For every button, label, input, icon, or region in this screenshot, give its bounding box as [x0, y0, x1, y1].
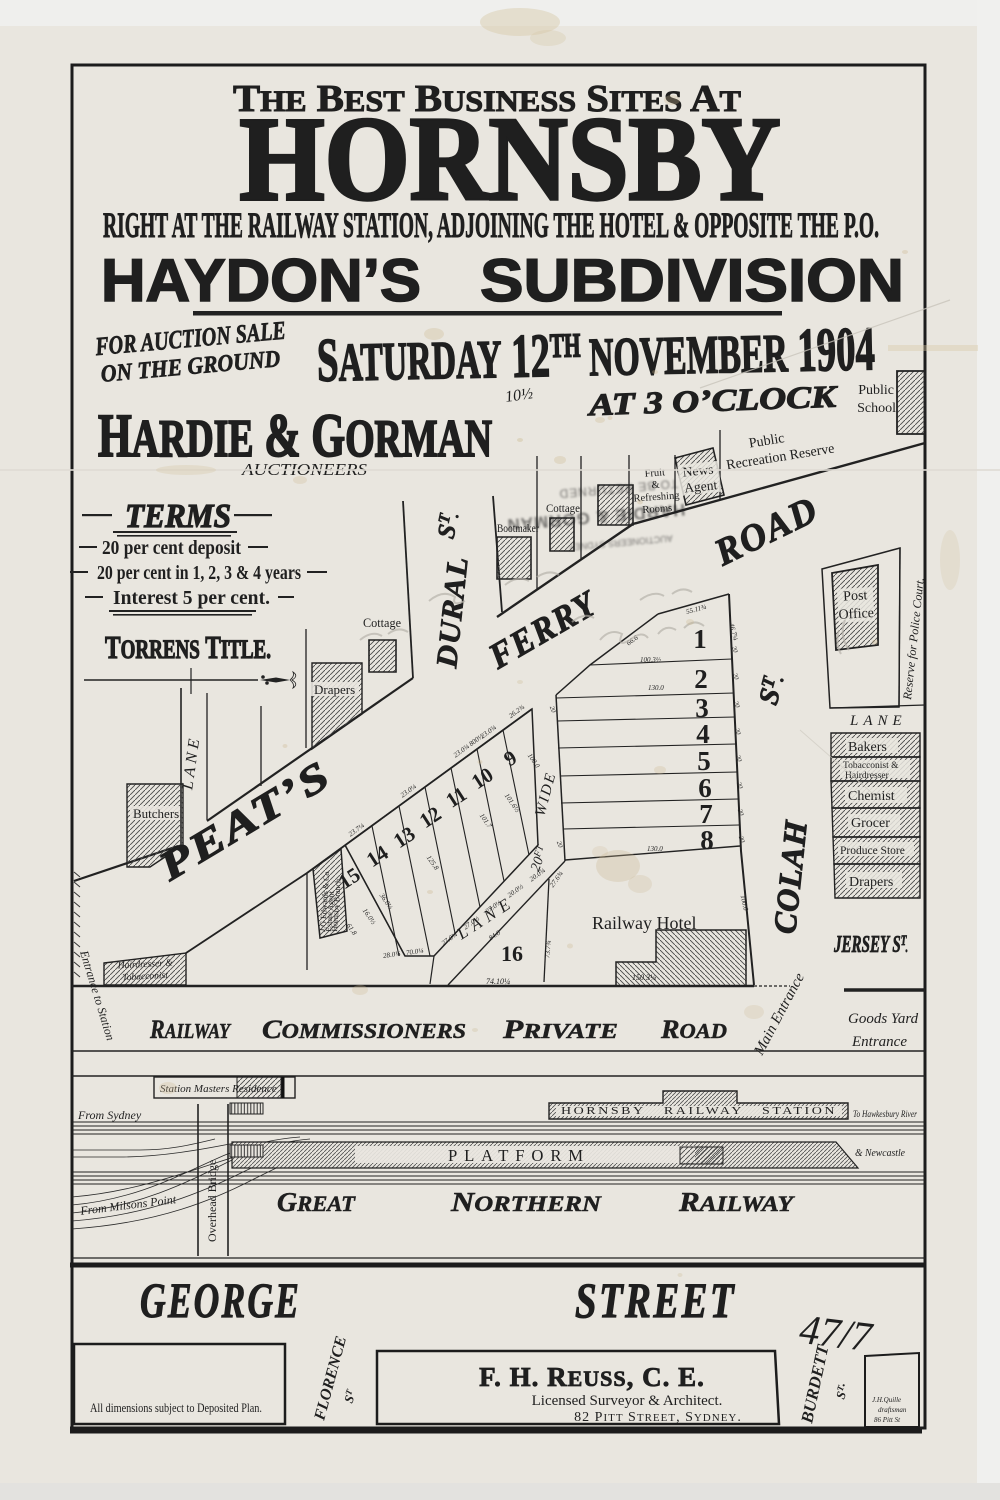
svg-text:8: 8 — [700, 825, 714, 855]
svg-text:82 PITT STREET, SYDNEY.: 82 PITT STREET, SYDNEY. — [574, 1410, 742, 1425]
svg-text:Station Masters Residence: Station Masters Residence — [160, 1083, 277, 1095]
svg-text:Post: Post — [843, 588, 868, 604]
svg-text:Licensed Surveyor & Architect.: Licensed Surveyor & Architect. — [532, 1393, 723, 1409]
svg-text:F. H. REUSS, C. E.: F. H. REUSS, C. E. — [479, 1362, 705, 1392]
svg-text:J.H.Quille: J.H.Quille — [872, 1396, 901, 1404]
svg-text:1: 1 — [693, 624, 707, 654]
svg-text:Bakers: Bakers — [848, 740, 887, 755]
svg-text:PLATFORM: PLATFORM — [448, 1146, 590, 1165]
svg-text:From Sydney: From Sydney — [77, 1108, 142, 1122]
svg-text:Butchers: Butchers — [133, 806, 179, 821]
svg-text:All dimensions subject to Depo: All dimensions subject to Deposited Plan… — [90, 1401, 262, 1415]
svg-text:HORNSBY RAILWAY STATION: HORNSBY RAILWAY STATION — [561, 1105, 837, 1117]
svg-text:Cottage: Cottage — [363, 616, 401, 630]
svg-text:JERSEY ST.: JERSEY ST. — [833, 932, 908, 958]
svg-text:NORTHERN: NORTHERN — [450, 1187, 603, 1217]
svg-text:5: 5 — [697, 746, 711, 776]
svg-text:73.7¾: 73.7¾ — [543, 939, 553, 958]
svg-text:HAYDON’S: HAYDON’S — [101, 247, 421, 314]
svg-text:130.0: 130.0 — [648, 684, 664, 692]
svg-text:Interest 5 per cent.: Interest 5 per cent. — [113, 587, 270, 609]
svg-text:GREAT: GREAT — [277, 1187, 357, 1217]
svg-text:Entrance: Entrance — [851, 1034, 907, 1050]
svg-text:Office: Office — [838, 606, 874, 623]
svg-text:RAILWAY: RAILWAY — [678, 1187, 796, 1217]
svg-text:2: 2 — [694, 664, 708, 694]
svg-text:Public: Public — [858, 383, 894, 398]
svg-text:LANE: LANE — [849, 713, 907, 729]
svg-text:SUBDIVISION: SUBDIVISION — [480, 247, 904, 314]
svg-text:To Hawkesbury River: To Hawkesbury River — [853, 1109, 917, 1119]
svg-text:COMMISSIONERS: COMMISSIONERS — [262, 1015, 466, 1044]
svg-text:RAILWAY: RAILWAY — [149, 1015, 232, 1044]
svg-text:ROAD: ROAD — [660, 1015, 727, 1044]
svg-text:TERMS: TERMS — [125, 498, 231, 535]
svg-text:draftsman: draftsman — [878, 1406, 907, 1414]
svg-text:20 per cent in 1, 2, 3 & 4 yea: 20 per cent in 1, 2, 3 & 4 years — [97, 562, 301, 584]
svg-text:150.3¼: 150.3¼ — [632, 973, 656, 982]
svg-text:16: 16 — [501, 941, 523, 966]
svg-text:4: 4 — [696, 719, 710, 749]
svg-text:Tobacconist &: Tobacconist & — [843, 761, 899, 771]
svg-text:Drapers: Drapers — [314, 682, 355, 697]
svg-text:PRIVATE: PRIVATE — [502, 1015, 618, 1044]
svg-text:Produce Store: Produce Store — [840, 845, 905, 857]
svg-text:TORRENS TITLE.: TORRENS TITLE. — [105, 629, 271, 665]
svg-text:Hairdresser: Hairdresser — [845, 771, 890, 781]
svg-text:Goods Yard: Goods Yard — [848, 1011, 919, 1027]
svg-text:GEORGE: GEORGE — [140, 1272, 301, 1328]
svg-text:& Newcastle: & Newcastle — [855, 1148, 906, 1159]
svg-text:STREET: STREET — [575, 1272, 736, 1328]
svg-text:RIGHT AT THE RAILWAY STATION,: RIGHT AT THE RAILWAY STATION, ADJOINING … — [103, 205, 879, 245]
svg-text:Grocer: Grocer — [851, 816, 890, 831]
svg-text:Drapers: Drapers — [849, 875, 893, 890]
svg-text:20 per cent deposit: 20 per cent deposit — [102, 537, 241, 559]
svg-text:130.0: 130.0 — [647, 845, 663, 853]
svg-text:74.10¼: 74.10¼ — [486, 977, 510, 986]
svg-text:47/7: 47/7 — [797, 1307, 876, 1362]
svg-text:Chemist: Chemist — [848, 789, 895, 804]
svg-text:100.3½: 100.3½ — [640, 656, 662, 664]
svg-text:86 Pitt St: 86 Pitt St — [874, 1416, 901, 1424]
svg-text:School: School — [857, 401, 896, 416]
